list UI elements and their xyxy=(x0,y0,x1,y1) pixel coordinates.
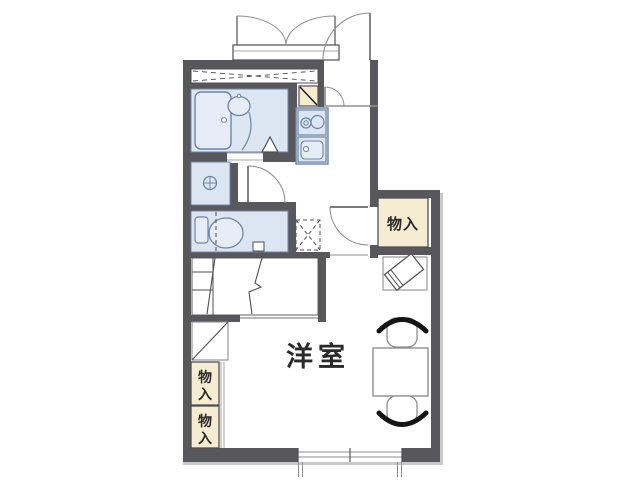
chair-bottom-seat xyxy=(387,396,417,423)
floor-plan: 物入 物 入 物 入 xyxy=(0,0,640,491)
wall-stairs-bottom xyxy=(183,315,240,322)
wall-storage-top xyxy=(370,190,440,198)
storage-bottom-lower-char2: 入 xyxy=(198,431,212,447)
wall-pan-right xyxy=(230,162,238,207)
basin-faucet xyxy=(237,94,241,98)
appliance-space xyxy=(383,254,427,291)
wall-toilet-right xyxy=(288,202,296,252)
toilet-tank xyxy=(195,217,208,243)
bathtub-drain xyxy=(222,118,227,123)
wall-bottom-right xyxy=(402,448,440,462)
wall-stairs-right xyxy=(318,258,326,322)
storage-bottom: 物 入 物 入 xyxy=(191,362,224,448)
bathroom xyxy=(191,89,288,152)
wall-top xyxy=(183,60,324,69)
storage-right-label: 物入 xyxy=(387,215,419,233)
storage-bottom-upper-char1: 物 xyxy=(198,369,212,386)
storage-bottom-lower-char1: 物 xyxy=(198,413,212,430)
wall-right-outer xyxy=(431,190,440,462)
toilet-bowl xyxy=(209,218,243,248)
stove-unit xyxy=(298,110,326,135)
wall-mid xyxy=(183,252,330,258)
wall-shadow-right xyxy=(440,193,443,462)
understair-space xyxy=(192,322,228,360)
laundry-pan xyxy=(191,162,230,205)
wall-left xyxy=(183,60,191,462)
room-label: 洋室 xyxy=(286,341,350,373)
wall-storage-bottom xyxy=(370,247,433,255)
wall-entry-stub xyxy=(318,60,324,107)
wall-bottom-left xyxy=(183,448,298,462)
table xyxy=(373,348,428,396)
wall-shadow-bottom xyxy=(183,462,443,465)
loft-stairs xyxy=(192,258,318,318)
storage-bottom-upper-char2: 入 xyxy=(198,387,212,403)
wash-basin xyxy=(228,97,250,116)
toilet-room xyxy=(191,211,288,252)
sink-drain xyxy=(303,146,308,151)
floor-plan-canvas: 物入 物 入 物 入 xyxy=(0,0,640,491)
paper-holder xyxy=(253,242,264,251)
overhead-cabinet-box xyxy=(191,69,318,83)
wall-right-upper xyxy=(370,60,378,207)
overhead-cabinet xyxy=(191,69,318,83)
wall-bath-top xyxy=(183,83,297,89)
